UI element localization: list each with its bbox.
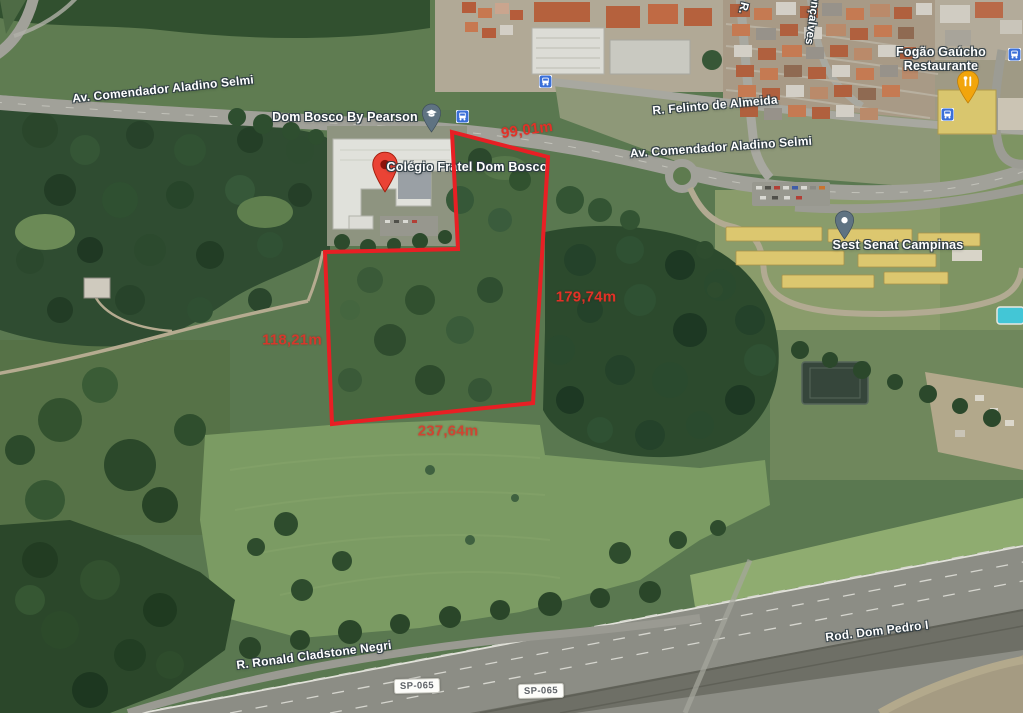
scrub-left [0, 340, 234, 535]
place-label-sest-senat[interactable]: Sest Senat Campinas [833, 238, 964, 252]
bus-stop-icon[interactable] [456, 110, 469, 123]
place-label-fogao-gaucho[interactable]: Fogão Gaúcho Restaurante [896, 45, 986, 73]
restaurant-pin[interactable] [956, 70, 980, 109]
satellite-imagery [0, 0, 1023, 713]
place-label-dom-bosco-pearson[interactable]: Dom Bosco By Pearson [272, 110, 418, 124]
bus-stop-icon-2[interactable] [539, 75, 552, 88]
route-badge-sp065-2: SP-065 [518, 683, 564, 699]
measurement-left: 118,21m [262, 332, 322, 349]
measurement-bottom: 237,64m [418, 423, 479, 440]
route-badge-sp065: SP-065 [394, 678, 440, 694]
fogao-gaucho-line1: Fogão Gaúcho [896, 45, 986, 59]
school-pin[interactable] [421, 103, 442, 138]
map-viewport[interactable]: Av. Comendador Aladino Selmi R. Felinto … [0, 0, 1023, 713]
measurement-right: 179,74m [556, 289, 617, 306]
place-label-colegio-dom-bosco[interactable]: Colégio Fratel Dom Bosco [386, 160, 547, 174]
bus-stop-icon-4[interactable] [1008, 48, 1021, 61]
red-location-pin[interactable] [371, 151, 399, 198]
bus-stop-icon-3[interactable] [941, 108, 954, 121]
